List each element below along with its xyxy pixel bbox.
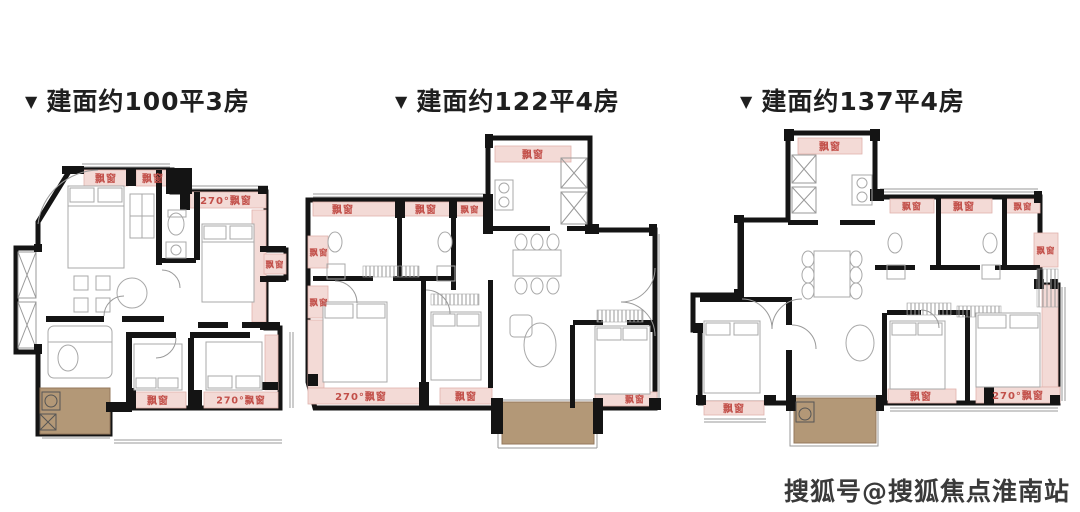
bay-window-label: 飘窗 <box>415 203 437 216</box>
bay-window-label: 飘窗 <box>1013 202 1032 213</box>
plan-title-137: ▼建面约137平4房 <box>740 82 965 118</box>
bay-window-label: 飘窗 <box>460 205 479 216</box>
bay-window-label: 飘窗 <box>522 148 544 161</box>
bay-window-label: 飘窗 <box>309 298 328 309</box>
triangle-marker: ▼ <box>740 92 753 111</box>
bay-window-label: 飘窗 <box>265 260 284 271</box>
bay-window-label: 飘窗 <box>309 248 328 259</box>
bay-window-270-label: 270°飘窗 <box>216 395 266 407</box>
bay-window-label: 飘窗 <box>625 394 645 406</box>
triangle-marker: ▼ <box>395 92 408 111</box>
floor-plan-100: 飘窗 飘窗 270°飘窗 飘窗 飘窗 270°飘窗 <box>10 130 300 460</box>
plan-title-122: ▼建面约122平4房 <box>395 82 620 118</box>
bay-window-label: 飘窗 <box>455 390 477 403</box>
balcony <box>502 402 594 444</box>
plan-title-100: ▼建面约100平3房 <box>25 82 250 118</box>
bay-window-270-label: 270°飘窗 <box>200 194 252 207</box>
triangle-marker: ▼ <box>25 92 38 111</box>
floor-plan-137: 飘窗 飘窗 飘窗 飘窗 飘窗 飘窗 飘窗 270°飘窗 <box>690 125 1080 465</box>
bay-window-label: 飘窗 <box>910 390 932 403</box>
bay-window-label: 飘窗 <box>819 140 841 153</box>
bay-window-label: 飘窗 <box>95 172 117 185</box>
bay-window-label: 飘窗 <box>332 203 354 216</box>
plan-title-text: 建面约100平3房 <box>46 87 250 116</box>
plan-title-text: 建面约122平4房 <box>416 87 620 116</box>
bay-window-270-label: 270°飘窗 <box>992 389 1044 402</box>
bay-window-label: 飘窗 <box>1036 246 1055 257</box>
bay-window-270-label: 270°飘窗 <box>335 390 387 403</box>
watermark: 搜狐号@搜狐焦点淮南站 <box>784 472 1070 508</box>
bay-window-label: 飘窗 <box>723 402 745 415</box>
bay-window-label: 飘窗 <box>902 201 922 213</box>
bay-window-label: 飘窗 <box>142 172 164 185</box>
floor-plan-122: 飘窗 飘窗 飘窗 飘窗 飘窗 飘窗 270°飘窗 飘窗 飘窗 <box>305 130 665 460</box>
plan-title-text: 建面约137平4房 <box>761 87 965 116</box>
bay-window-label: 飘窗 <box>953 200 975 213</box>
balcony <box>794 398 876 443</box>
bay-window-label: 飘窗 <box>147 394 169 407</box>
